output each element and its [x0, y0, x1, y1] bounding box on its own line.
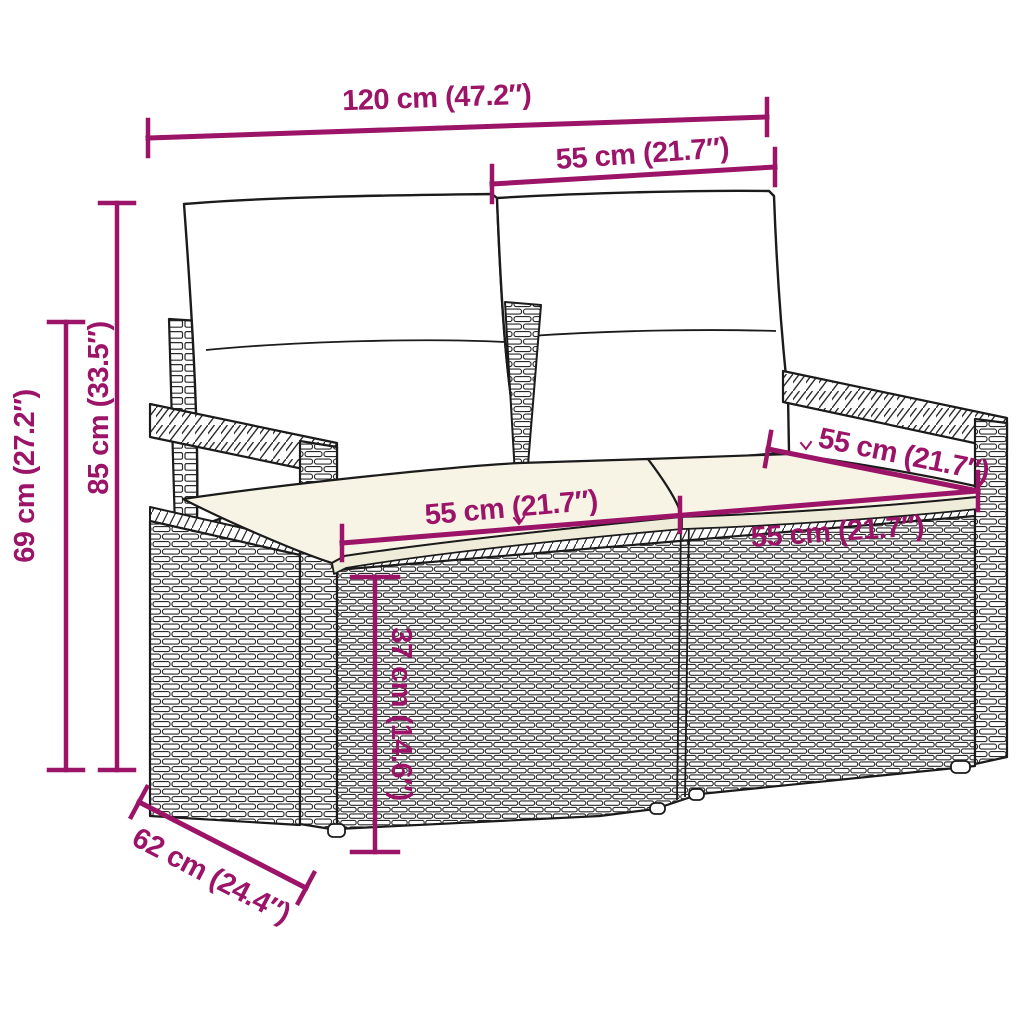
sofa-base-front-face: [337, 516, 975, 829]
sofa-left-face: [150, 521, 300, 825]
dim-label-overall-width: 120 cm (47.2″): [342, 79, 532, 118]
dimension-diagram-canvas: 120 cm (47.2″) 55 cm (21.7″) 85 cm (33.5…: [0, 0, 1024, 1024]
dim-label-seat-height: 37 cm (14.6″): [385, 627, 417, 800]
dim-label-arm-height: 69 cm (27.2″): [9, 389, 41, 562]
sofa-dimension-diagram: 120 cm (47.2″) 55 cm (21.7″) 85 cm (33.5…: [0, 0, 1024, 1024]
dim-tick-v-right: [801, 442, 811, 449]
dim-line-arm-height: [49, 322, 83, 770]
dim-label-back-height: 85 cm (33.5″): [83, 321, 115, 494]
sofa-back-cushion-right: [497, 191, 789, 467]
